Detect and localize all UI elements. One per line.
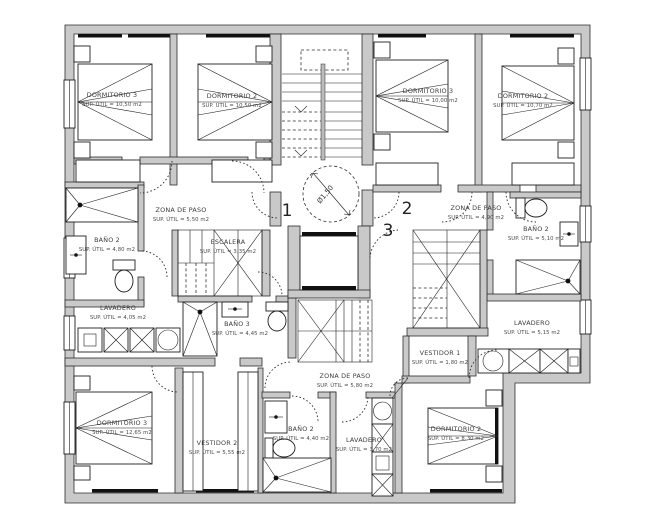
svg-text:DORMITORIO 3: DORMITORIO 3 (97, 419, 148, 427)
svg-text:SUP. ÚTIL = 5,50 m2: SUP. ÚTIL = 5,50 m2 (153, 216, 209, 223)
svg-text:SUP. ÚTIL = 4,45 m2: SUP. ÚTIL = 4,45 m2 (212, 330, 268, 337)
svg-text:BAÑO 3: BAÑO 3 (224, 319, 250, 328)
door-number-1: 1 (282, 201, 293, 221)
turning-circle-label: Ø1,50 (316, 184, 336, 205)
svg-text:DORMITORIO 2: DORMITORIO 2 (431, 425, 482, 433)
shower-icon (183, 302, 217, 356)
room-label-bano2-right: BAÑO 2 SUP. ÚTIL = 5,10 m2 (508, 224, 564, 242)
svg-text:SUP. ÚTIL = 3,35 m2: SUP. ÚTIL = 3,35 m2 (200, 248, 256, 255)
toilet-icon (266, 302, 288, 331)
sink-icon (265, 401, 287, 433)
svg-text:SUP. ÚTIL = 10,00 m2: SUP. ÚTIL = 10,00 m2 (398, 97, 458, 104)
svg-text:ESCALERA: ESCALERA (211, 238, 246, 246)
floor-plan-drawing: Ø1,50 1 2 3 DORMITORIO 3 SUP. ÚTIL = 10,… (0, 0, 656, 529)
svg-text:BAÑO 2: BAÑO 2 (523, 224, 549, 233)
toilet-icon (113, 260, 135, 292)
svg-text:SUP. ÚTIL = 10,70 m2: SUP. ÚTIL = 10,70 m2 (493, 102, 553, 109)
svg-text:DORMITORIO 2: DORMITORIO 2 (207, 92, 258, 100)
room-label-vestidor1: VESTIDOR 1 SUP. ÚTIL = 1,80 m2 (412, 349, 468, 366)
toilet-icon (516, 198, 547, 218)
turning-circle: Ø1,50 (303, 166, 359, 222)
room-label-bano2-left: BAÑO 2 SUP. ÚTIL = 4,80 m2 (79, 235, 135, 253)
communal-stairs (282, 50, 362, 160)
shower-icon (516, 260, 580, 294)
door-number-3: 3 (383, 221, 394, 241)
sink-icon (560, 222, 578, 246)
stair-bottom (298, 300, 372, 362)
svg-text:ZONA DE PASO: ZONA DE PASO (451, 204, 502, 212)
svg-text:VESTIDOR 2: VESTIDOR 2 (197, 439, 238, 447)
door-arc-icon (140, 161, 172, 193)
svg-text:ZONA DE PASO: ZONA DE PASO (320, 372, 371, 380)
svg-text:LAVADERO: LAVADERO (100, 304, 136, 312)
svg-text:VESTIDOR 1: VESTIDOR 1 (420, 349, 461, 357)
door-number-2: 2 (402, 199, 413, 219)
svg-text:DORMITORIO 3: DORMITORIO 3 (403, 87, 454, 95)
svg-text:SUP. ÚTIL = 10,50 m2: SUP. ÚTIL = 10,50 m2 (202, 102, 262, 109)
svg-text:SUP. ÚTIL = 4,40 m2: SUP. ÚTIL = 4,40 m2 (273, 435, 329, 442)
svg-text:BAÑO 2: BAÑO 2 (288, 424, 314, 433)
bed-icon (198, 46, 272, 158)
elevator (288, 226, 370, 298)
svg-text:SUP. ÚTIL = 12,65 m2: SUP. ÚTIL = 12,65 m2 (92, 429, 152, 436)
sink-icon (66, 236, 86, 274)
room-label-zona-de-paso-right: ZONA DE PASO SUP. ÚTIL = 4,90 m2 (448, 204, 504, 221)
washer-icon (78, 328, 180, 352)
svg-text:ZONA DE PASO: ZONA DE PASO (156, 206, 207, 214)
room-label-zona-de-paso-bottom: ZONA DE PASO SUP. ÚTIL = 5,80 m2 (317, 372, 373, 389)
svg-text:BAÑO 2: BAÑO 2 (94, 235, 120, 244)
svg-text:SUP. ÚTIL = 4,05 m2: SUP. ÚTIL = 4,05 m2 (90, 314, 146, 321)
svg-text:SUP. ÚTIL = 5,80 m2: SUP. ÚTIL = 5,80 m2 (317, 382, 373, 389)
elevator-door-icon (302, 232, 356, 236)
svg-text:DORMITORIO 2: DORMITORIO 2 (498, 92, 549, 100)
stair-right (413, 230, 480, 328)
svg-text:DORMITORIO 3: DORMITORIO 3 (87, 91, 138, 99)
floor-plan-page: Ø1,50 1 2 3 DORMITORIO 3 SUP. ÚTIL = 10,… (0, 0, 656, 529)
room-label-lavadero-right: LAVADERO SUP. ÚTIL = 5,15 m2 (504, 319, 560, 336)
svg-text:SUP. ÚTIL = 5,10 m2: SUP. ÚTIL = 5,10 m2 (508, 235, 564, 242)
room-label-bano3: BAÑO 3 SUP. ÚTIL = 4,45 m2 (212, 319, 268, 337)
svg-text:SUP. ÚTIL = 5,15 m2: SUP. ÚTIL = 5,15 m2 (504, 329, 560, 336)
svg-text:SUP. ÚTIL = 10,50 m2: SUP. ÚTIL = 10,50 m2 (82, 101, 142, 108)
svg-text:SUP. ÚTIL = 1,80 m2: SUP. ÚTIL = 1,80 m2 (412, 359, 468, 366)
washer-icon (478, 349, 580, 373)
shower-icon (263, 458, 331, 492)
svg-text:SUP. ÚTIL = 5,55 m2: SUP. ÚTIL = 5,55 m2 (189, 449, 245, 456)
svg-text:LAVADERO: LAVADERO (514, 319, 550, 327)
vestidor-wardrobe-icon (183, 372, 258, 491)
svg-text:SUP. ÚTIL = 4,80 m2: SUP. ÚTIL = 4,80 m2 (79, 246, 135, 253)
svg-text:SUP. ÚTIL = 4,90 m2: SUP. ÚTIL = 4,90 m2 (448, 214, 504, 221)
shower-icon (66, 188, 138, 222)
sink-icon (222, 302, 248, 317)
bed-icon (74, 376, 152, 480)
room-label-zona-de-paso-left: ZONA DE PASO SUP. ÚTIL = 5,50 m2 (153, 206, 209, 223)
bed-icon (374, 42, 448, 150)
svg-text:LAVADERO: LAVADERO (346, 436, 382, 444)
svg-text:SUP. ÚTIL = 8,30 m2: SUP. ÚTIL = 8,30 m2 (428, 435, 484, 442)
room-label-escalera: ESCALERA SUP. ÚTIL = 3,35 m2 (200, 238, 256, 255)
stair-arrow-icon (295, 106, 307, 112)
svg-text:SUP. ÚTIL = 3,70 m2: SUP. ÚTIL = 3,70 m2 (336, 446, 392, 453)
